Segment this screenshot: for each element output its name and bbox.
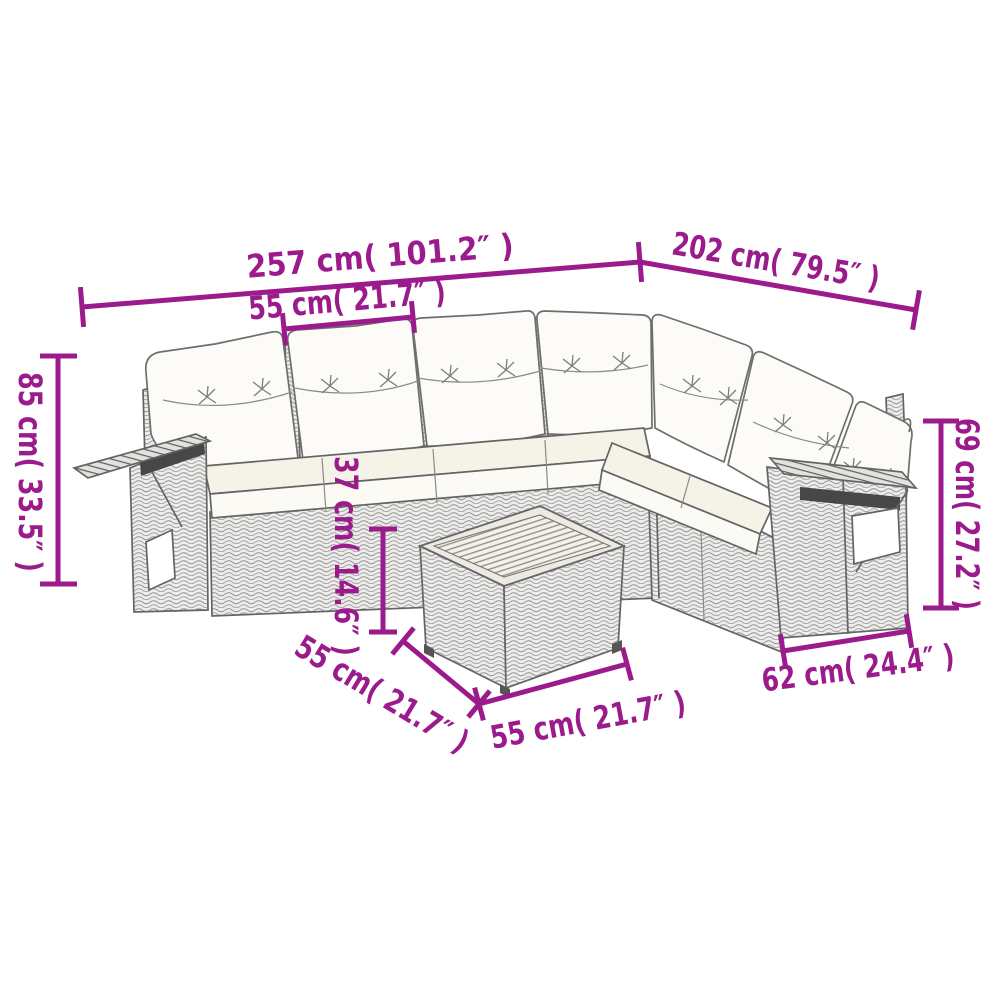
dimension-label: 62 cm( 24.4″ ) [759, 637, 956, 700]
back-cushion-2 [288, 319, 424, 460]
dimension-label: 69 cm( 27.2″ ) [948, 418, 986, 610]
left-armrest [74, 434, 210, 612]
right-armrest [767, 458, 916, 638]
dimension-label: 37 cm( 14.6″ ) [327, 456, 365, 656]
product-dimension-diagram: 257 cm( 101.2″ ) 202 cm( 79.5″ ) 55 cm( … [0, 0, 1000, 1000]
sofa-illustration [74, 311, 916, 698]
diagram-canvas: 257 cm( 101.2″ ) 202 cm( 79.5″ ) 55 cm( … [0, 0, 1000, 1000]
back-cushion-4 [537, 311, 652, 435]
dimension-total-height: 85 cm( 33.5″ ) [11, 356, 77, 584]
back-cushion-3 [413, 311, 545, 446]
dimension-label: 85 cm( 33.5″ ) [11, 372, 49, 572]
dimension-arm-height: 69 cm( 27.2″ ) [923, 418, 986, 610]
dimension-total-width-right: 202 cm( 79.5″ ) [640, 224, 919, 329]
